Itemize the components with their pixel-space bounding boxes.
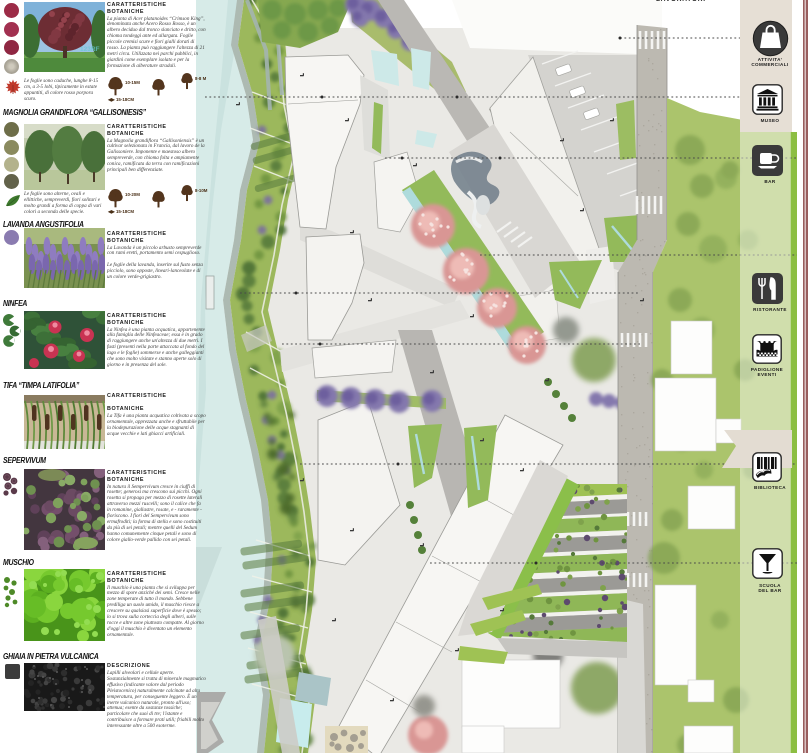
svg-text:123RF: 123RF <box>80 46 100 53</box>
